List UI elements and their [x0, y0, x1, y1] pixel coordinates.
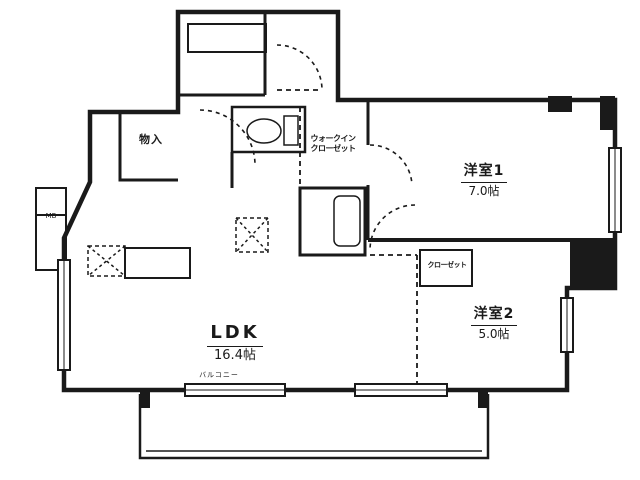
bedroom2-name: 洋室2 [471, 306, 518, 326]
room-label-closet: クローゼット [420, 261, 474, 270]
room-label-balcony: バルコニー [184, 371, 254, 380]
hall-door-arc [200, 110, 255, 165]
bathtub-icon [334, 196, 360, 246]
room-label-bedroom2: 洋室2 5.0帖 [438, 303, 550, 342]
kitchen-counter [125, 248, 190, 278]
bedroom1-size: 7.0帖 [428, 184, 540, 199]
balcony-name: バルコニー [199, 371, 239, 379]
bedroom2-door-arc [370, 205, 415, 250]
refrigerator-space-icon [88, 246, 125, 276]
washer-space-icon [236, 218, 268, 252]
room-label-storage: 物入 [124, 133, 178, 147]
ldk-size: 16.4帖 [170, 348, 300, 364]
bedroom1-door-arc [370, 145, 412, 185]
floorplan-drawing [0, 0, 640, 480]
room-label-ldk: LDK 16.4帖 [170, 322, 300, 364]
bedroom2-size: 5.0帖 [438, 327, 550, 342]
bedroom1-name: 洋室1 [461, 163, 508, 183]
meter-box-outline [36, 188, 66, 270]
top-room-counter [188, 24, 266, 52]
ldk-name: LDK [207, 322, 262, 347]
balcony-outline [140, 394, 488, 458]
wic-line1: ウォークイン [311, 134, 356, 143]
wic-line2: クローゼット [311, 144, 356, 153]
room-label-walk-in-closet: ウォークイン クローゼット [296, 134, 370, 154]
meter-box-name: MB [46, 212, 57, 220]
entry-door-arc [277, 45, 322, 90]
room-label-bedroom1: 洋室1 7.0帖 [428, 160, 540, 199]
closet-name: クローゼット [428, 261, 467, 269]
room-label-meter-box: MB [40, 212, 62, 221]
toilet-icon [247, 116, 298, 145]
floor-plan-canvas: LDK 16.4帖 洋室1 7.0帖 洋室2 5.0帖 ウォークイン クローゼッ… [0, 0, 640, 480]
storage-name: 物入 [139, 133, 163, 146]
